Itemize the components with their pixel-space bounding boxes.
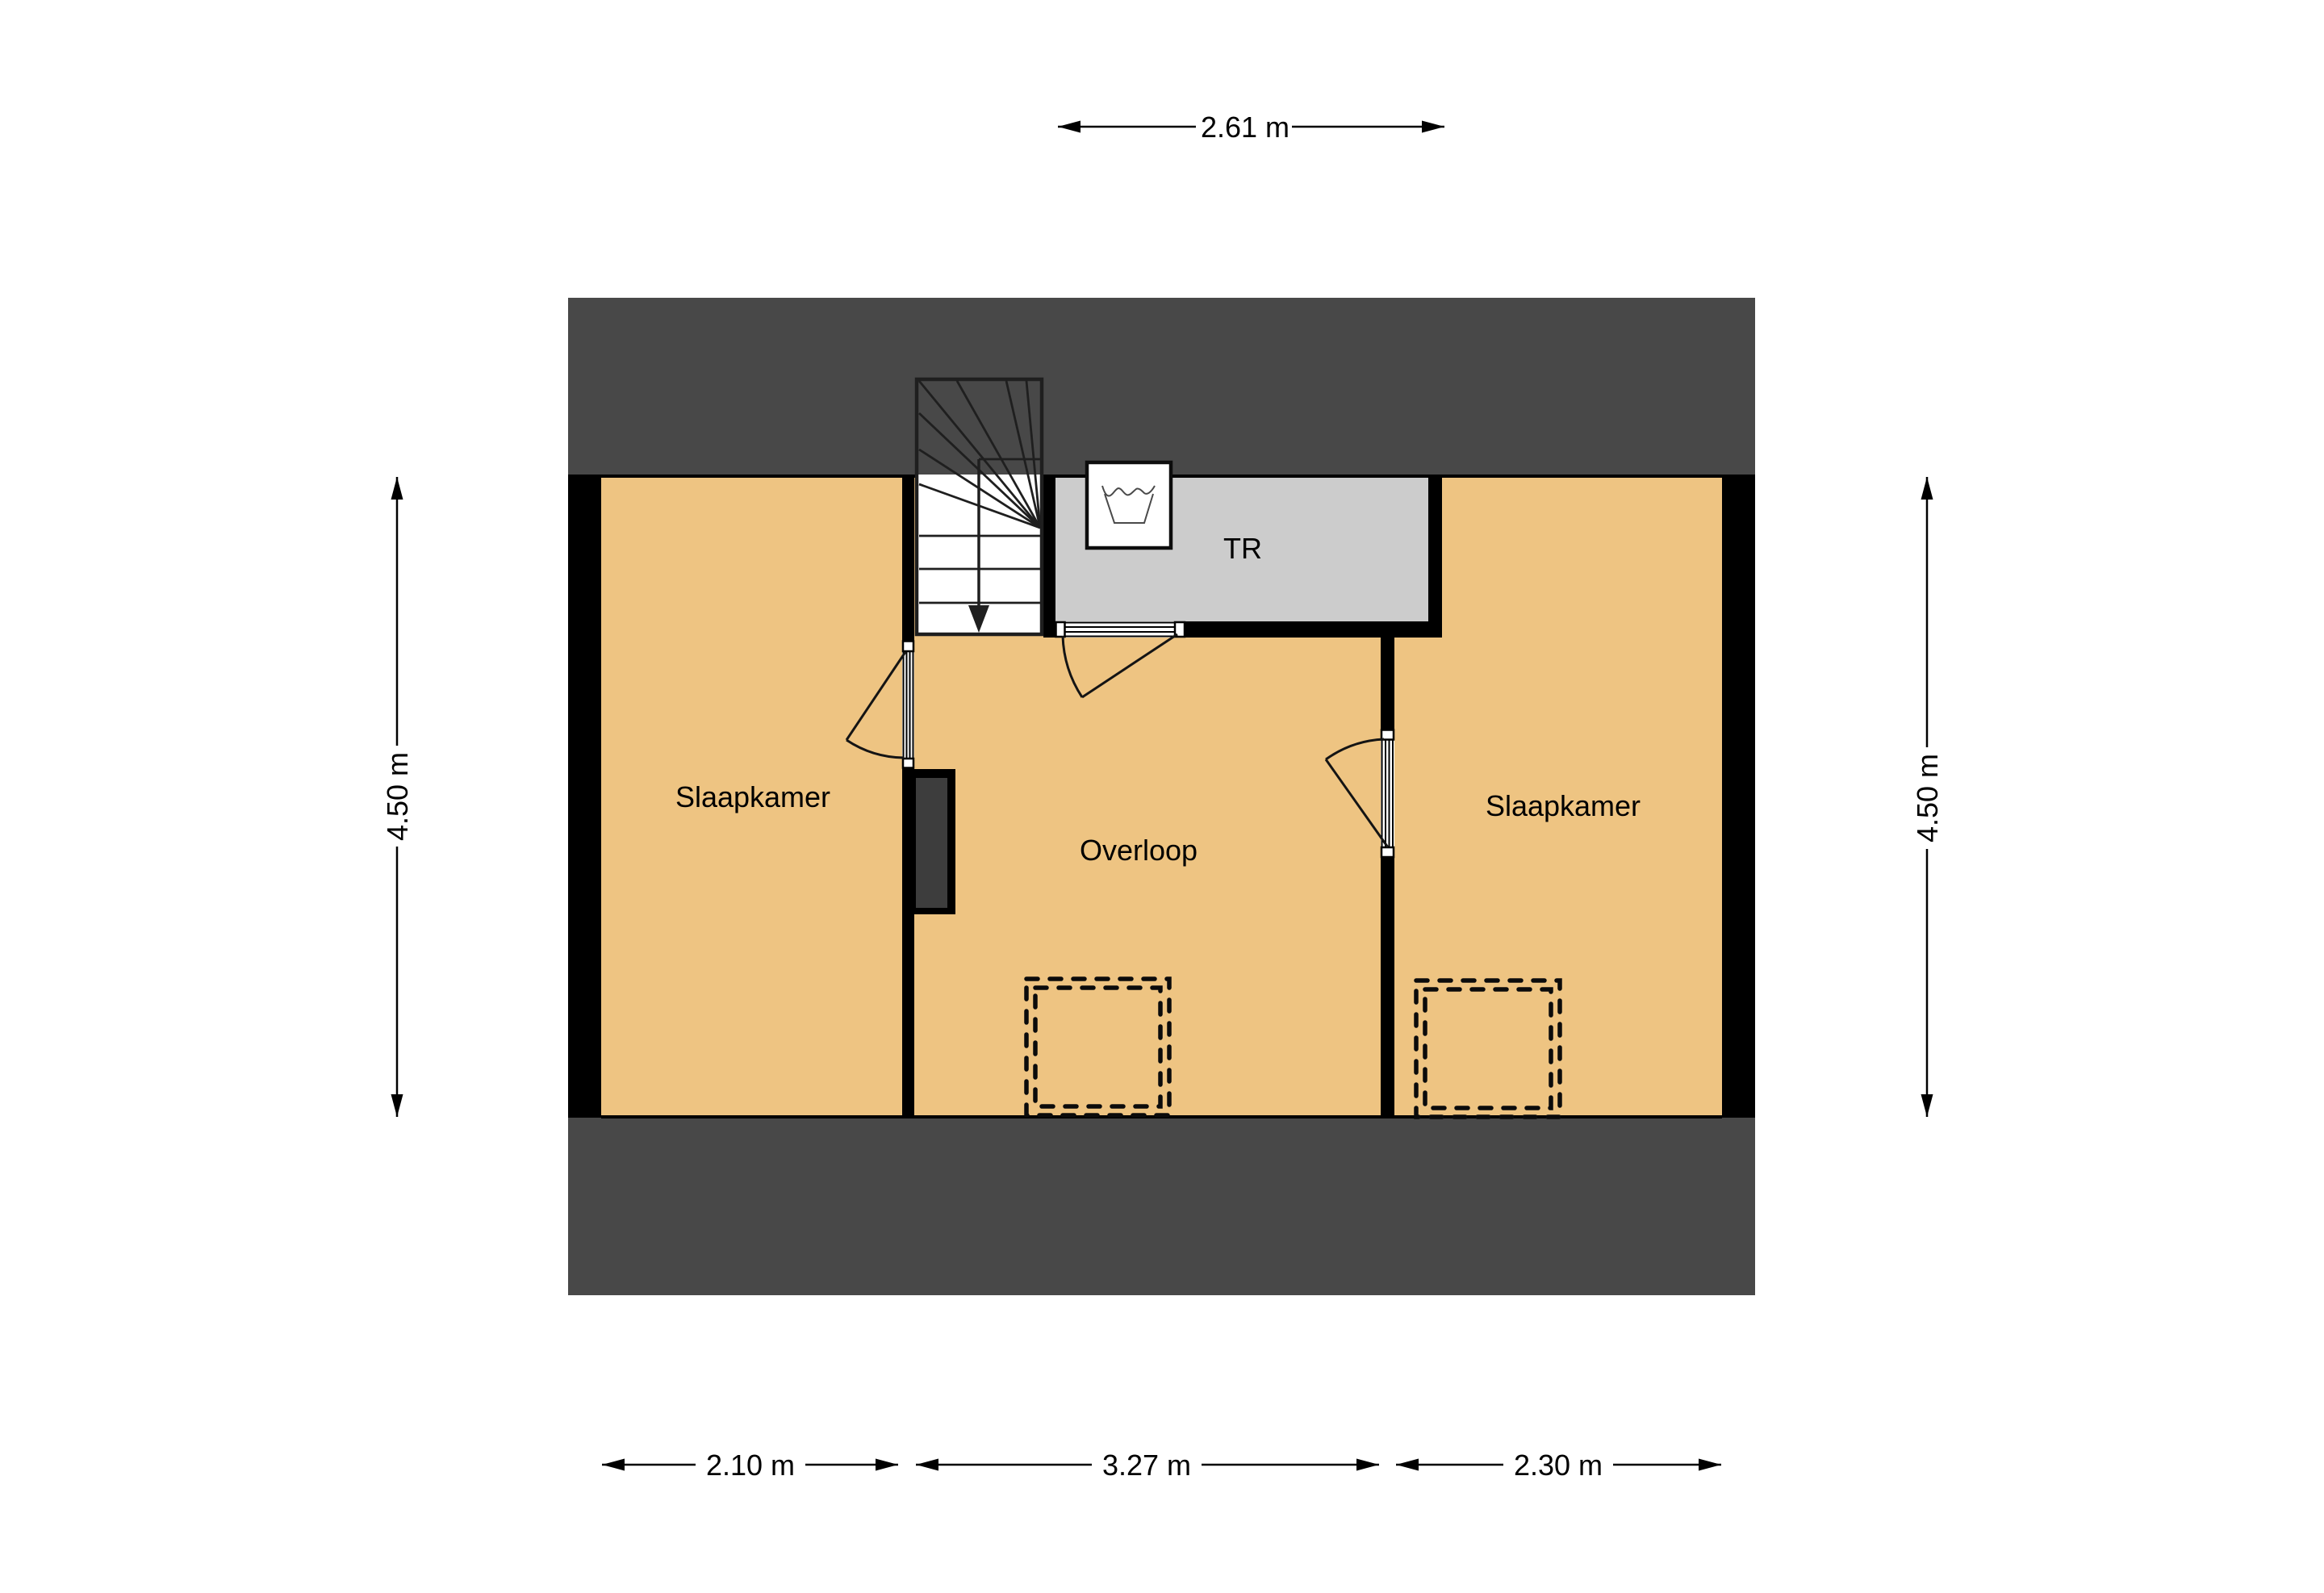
svg-text:4.50 m: 4.50 m: [381, 752, 414, 841]
svg-text:2.10 m: 2.10 m: [706, 1449, 795, 1482]
svg-text:4.50 m: 4.50 m: [1911, 754, 1944, 842]
svg-text:TR: TR: [1223, 532, 1262, 565]
svg-text:Overloop: Overloop: [1080, 834, 1198, 867]
svg-text:Slaapkamer: Slaapkamer: [675, 780, 830, 813]
svg-text:2.30 m: 2.30 m: [1514, 1449, 1603, 1482]
svg-text:Slaapkamer: Slaapkamer: [1486, 789, 1641, 822]
svg-text:2.61 m: 2.61 m: [1201, 111, 1289, 144]
svg-text:3.27 m: 3.27 m: [1102, 1449, 1191, 1482]
